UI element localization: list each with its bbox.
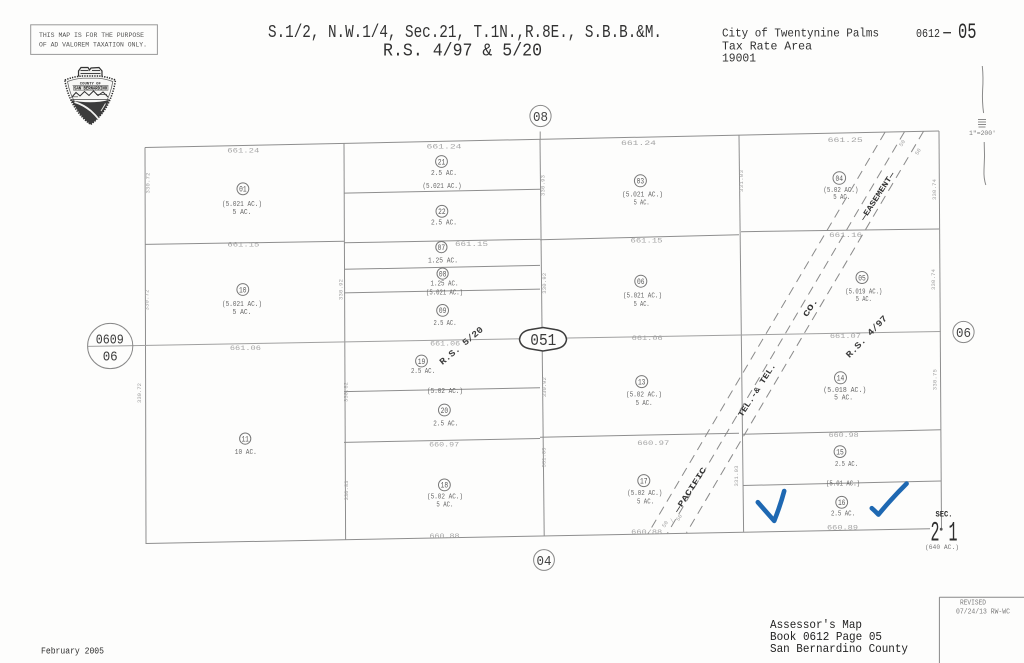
svg-text:09: 09 xyxy=(439,307,447,316)
svg-text:2.5 AC.: 2.5 AC. xyxy=(835,461,858,469)
svg-text:08: 08 xyxy=(439,270,447,279)
svg-text:1"=200': 1"=200' xyxy=(969,130,996,137)
svg-text:01: 01 xyxy=(239,186,247,195)
svg-text:330.92: 330.92 xyxy=(338,279,345,300)
svg-text:330.82: 330.82 xyxy=(343,382,350,402)
svg-text:2.5 AC.: 2.5 AC. xyxy=(831,511,855,519)
svg-text:2.5 AC.: 2.5 AC. xyxy=(431,220,457,228)
svg-text:661.06: 661.06 xyxy=(230,345,261,352)
svg-text:R.S. 4/97 & 5/20: R.S. 4/97 & 5/20 xyxy=(383,42,542,62)
svg-text:661.15: 661.15 xyxy=(455,241,488,248)
svg-text:(5.021 AC.): (5.021 AC.) xyxy=(423,183,462,191)
svg-text:0612: 0612 xyxy=(916,27,940,41)
svg-text:06: 06 xyxy=(103,350,118,366)
svg-text:330.74: 330.74 xyxy=(930,268,937,290)
svg-text:S.1/2, N.W.1/4, Sec.21, T.1N.,: S.1/2, N.W.1/4, Sec.21, T.1N.,R.8E., S.B… xyxy=(268,23,662,43)
svg-text:(5.02 AC.): (5.02 AC.) xyxy=(627,490,662,498)
svg-text:08: 08 xyxy=(533,110,548,126)
svg-text:2.5 AC.: 2.5 AC. xyxy=(411,368,435,376)
svg-text:13: 13 xyxy=(638,378,646,387)
svg-text:330.75: 330.75 xyxy=(932,369,939,390)
svg-text:10: 10 xyxy=(239,286,247,295)
svg-text:February 2005: February 2005 xyxy=(41,646,104,657)
svg-text:5 AC.: 5 AC. xyxy=(636,400,653,408)
svg-text:0609: 0609 xyxy=(96,333,124,349)
svg-text:19001: 19001 xyxy=(722,52,756,66)
svg-text:16: 16 xyxy=(838,499,846,508)
svg-text:661.06: 661.06 xyxy=(632,335,663,342)
svg-text:5 AC.: 5 AC. xyxy=(637,499,654,507)
svg-text:11: 11 xyxy=(241,435,249,444)
svg-text:2.5 AC.: 2.5 AC. xyxy=(433,420,458,428)
svg-text:THIS MAP IS FOR THE PURPOSE: THIS MAP IS FOR THE PURPOSE xyxy=(39,32,144,39)
svg-text:5 AC.: 5 AC. xyxy=(833,194,850,202)
svg-text:03: 03 xyxy=(637,178,645,187)
svg-text:660.88: 660.88 xyxy=(430,533,460,540)
svg-text:5 AC.: 5 AC. xyxy=(634,301,650,309)
svg-text:5 AC.: 5 AC. xyxy=(233,209,252,217)
svg-text:21: 21 xyxy=(438,158,446,167)
svg-text:05: 05 xyxy=(958,20,977,45)
svg-text:330.92: 330.92 xyxy=(541,377,548,397)
svg-text:661.24: 661.24 xyxy=(427,143,462,150)
svg-text:1.25 AC.: 1.25 AC. xyxy=(428,258,458,266)
svg-text:661.24: 661.24 xyxy=(621,140,656,147)
svg-text:City of Twentynine Palms: City of Twentynine Palms xyxy=(722,27,879,41)
svg-text:(5.021 AC.): (5.021 AC.) xyxy=(426,289,463,297)
svg-text:331.03: 331.03 xyxy=(738,170,745,192)
svg-text:10 AC.: 10 AC. xyxy=(235,449,257,457)
svg-text:330.72: 330.72 xyxy=(136,383,143,403)
svg-text:330.93: 330.93 xyxy=(540,175,547,196)
svg-text:(5.021 AC.): (5.021 AC.) xyxy=(623,293,662,301)
svg-text:(5.01 AC.): (5.01 AC.) xyxy=(826,481,860,489)
svg-text:San Bernardino County: San Bernardino County xyxy=(770,642,908,656)
svg-text:22: 22 xyxy=(438,208,446,217)
svg-text:661.15: 661.15 xyxy=(631,238,663,245)
svg-text:661.07: 661.07 xyxy=(830,333,861,340)
svg-text:(5.021 AC.): (5.021 AC.) xyxy=(622,191,663,199)
svg-text:15: 15 xyxy=(836,448,844,457)
svg-text:5 AC.: 5 AC. xyxy=(634,200,650,208)
svg-text:5 AC.: 5 AC. xyxy=(834,395,853,403)
svg-text:2.5 AC.: 2.5 AC. xyxy=(431,170,457,178)
svg-text:(5.02 AC.): (5.02 AC.) xyxy=(427,494,463,502)
svg-text:661.15: 661.15 xyxy=(227,242,259,249)
svg-text:04: 04 xyxy=(836,175,844,184)
svg-text:17: 17 xyxy=(640,477,648,486)
svg-text:5 AC.: 5 AC. xyxy=(436,501,453,509)
svg-text:660.97: 660.97 xyxy=(429,441,459,448)
svg-text:REVISED: REVISED xyxy=(960,600,986,608)
svg-text:2.5 AC.: 2.5 AC. xyxy=(434,320,457,328)
svg-text:(5.02 AC.): (5.02 AC.) xyxy=(427,388,463,396)
svg-text:331.03: 331.03 xyxy=(733,466,740,487)
svg-text:660.97: 660.97 xyxy=(637,440,669,447)
svg-text:660.98: 660.98 xyxy=(829,432,859,439)
svg-text:661.25: 661.25 xyxy=(828,137,863,144)
svg-text:06: 06 xyxy=(956,326,971,342)
svg-text:(5.021 AC.): (5.021 AC.) xyxy=(222,301,262,309)
svg-text:660/88: 660/88 xyxy=(631,529,662,536)
svg-text:051: 051 xyxy=(530,332,556,351)
svg-text:1.25 AC.: 1.25 AC. xyxy=(431,281,459,289)
svg-text:(640 AC.): (640 AC.) xyxy=(925,544,959,551)
svg-text:(5.02 AC.): (5.02 AC.) xyxy=(626,392,662,400)
svg-text:07/24/13 RW-WC: 07/24/13 RW-WC xyxy=(956,609,1010,617)
svg-text:19: 19 xyxy=(418,358,426,367)
svg-text:20: 20 xyxy=(441,407,449,416)
svg-text:330.74: 330.74 xyxy=(931,178,938,200)
svg-text:330.72: 330.72 xyxy=(144,290,151,311)
svg-text:330.72: 330.72 xyxy=(145,173,152,194)
svg-text:18: 18 xyxy=(441,482,449,491)
svg-text:07: 07 xyxy=(438,244,446,253)
svg-text:330.92: 330.92 xyxy=(541,273,548,294)
svg-text:331.03: 331.03 xyxy=(541,448,548,468)
svg-text:661.16: 661.16 xyxy=(829,232,862,239)
svg-text:05: 05 xyxy=(858,274,866,283)
svg-text:SAN BERNARDINO: SAN BERNARDINO xyxy=(74,87,107,92)
svg-text:660.89: 660.89 xyxy=(827,524,858,531)
svg-text:330.83: 330.83 xyxy=(343,481,350,501)
svg-text:04: 04 xyxy=(537,554,552,570)
svg-text:14: 14 xyxy=(837,375,845,384)
svg-text:(5.021 AC.): (5.021 AC.) xyxy=(222,201,262,209)
svg-text:06: 06 xyxy=(637,278,645,287)
svg-text:661.24: 661.24 xyxy=(227,147,259,154)
svg-text:5 AC.: 5 AC. xyxy=(233,309,252,317)
svg-text:OF AD VALOREM TAXATION ONLY.: OF AD VALOREM TAXATION ONLY. xyxy=(39,42,147,49)
svg-text:5 AC.: 5 AC. xyxy=(856,296,872,304)
